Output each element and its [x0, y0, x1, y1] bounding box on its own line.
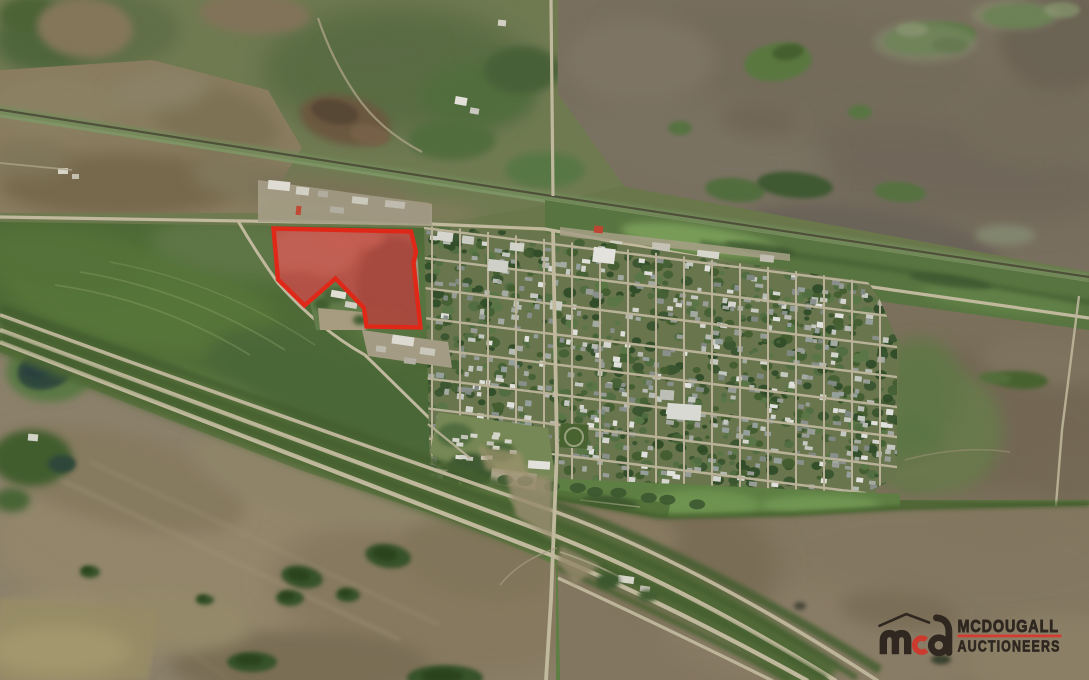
svg-text:MCDOUGALL: MCDOUGALL [958, 616, 1059, 636]
svg-text:AUCTIONEERS: AUCTIONEERS [958, 637, 1061, 655]
